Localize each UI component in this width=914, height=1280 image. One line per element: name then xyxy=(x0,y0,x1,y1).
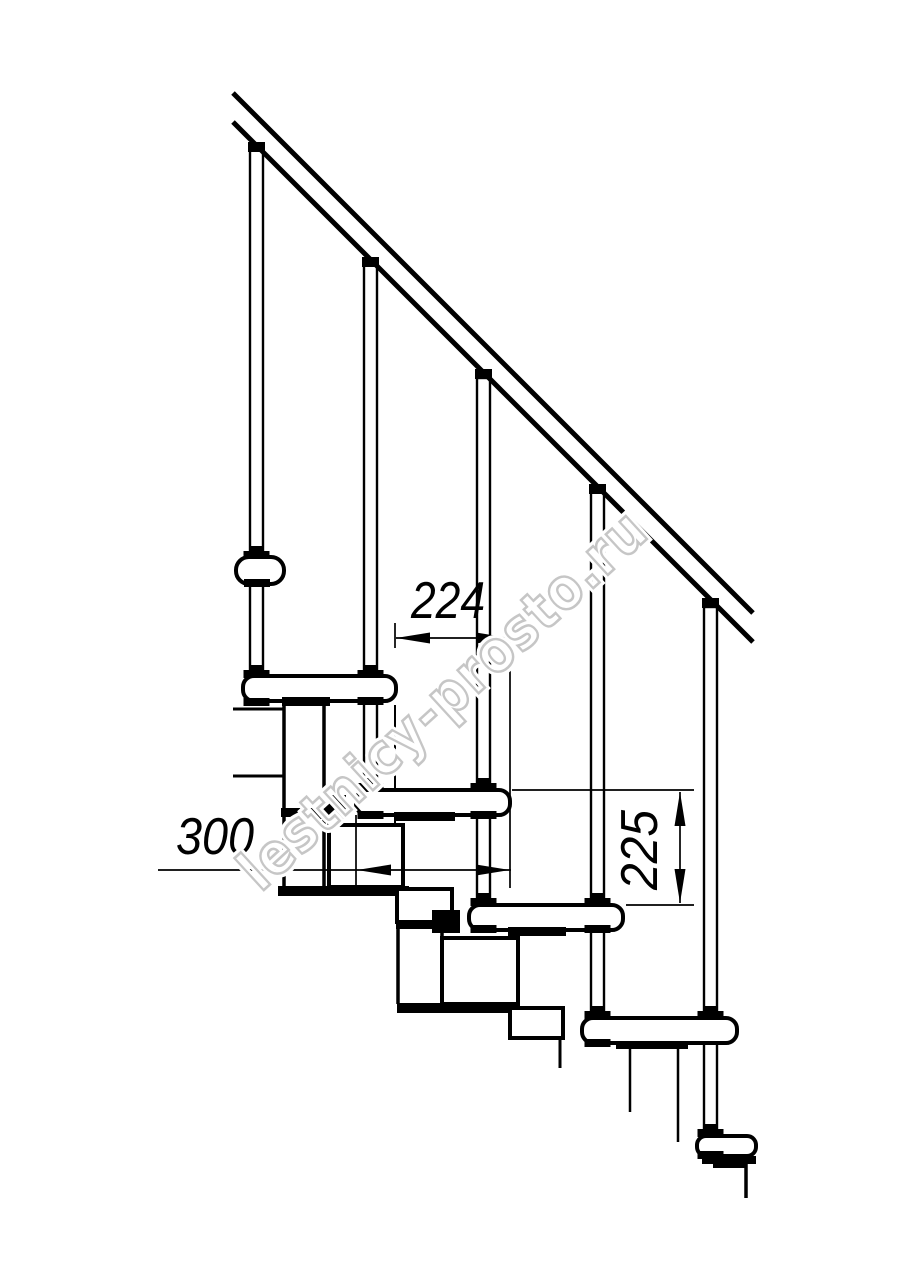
dimension-value-run: 224 xyxy=(410,572,485,630)
handrail-bottom-edge xyxy=(233,122,753,642)
staircase-drawing: 224 300 225 lestnicy-prosto.ru lestnicy-… xyxy=(0,0,914,1280)
baluster-5 xyxy=(704,607,717,1140)
chain-module-box xyxy=(442,938,518,1004)
arrow-up-icon xyxy=(675,792,686,826)
dimension-value-rise: 225 xyxy=(611,809,669,891)
chain-module-box xyxy=(510,1008,563,1038)
baluster-1 xyxy=(250,150,263,678)
baluster-2 xyxy=(364,265,377,792)
handrail-top-edge xyxy=(233,93,753,613)
handrail xyxy=(233,93,753,642)
arrow-left-icon xyxy=(396,633,430,644)
chain-bracket xyxy=(432,910,460,933)
arrow-down-icon xyxy=(675,869,686,903)
drawing-canvas: 224 300 225 lestnicy-prosto.ru lestnicy-… xyxy=(0,0,914,1280)
arrow-right-icon xyxy=(476,865,510,876)
